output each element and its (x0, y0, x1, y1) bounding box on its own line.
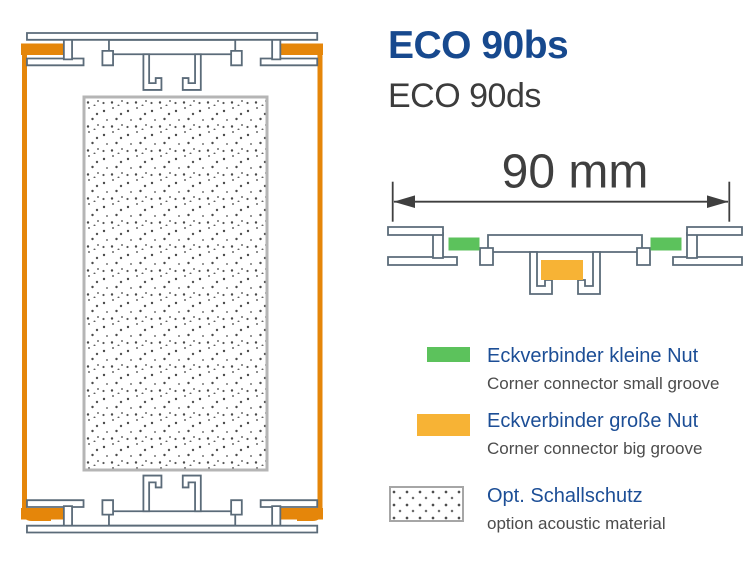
bottom-profile-cross-section (27, 476, 317, 533)
small-groove-swatch (427, 347, 470, 362)
acoustic-panel (84, 97, 267, 470)
big-groove-bar-bottom-right (276, 508, 323, 520)
dimension-label: 90 mm (502, 150, 649, 199)
dimension-arrowhead-right (707, 195, 729, 208)
legend-label-en: Corner connector big groove (487, 439, 750, 459)
frame-profile-right-line (297, 49, 320, 519)
big-groove-marker-center (541, 260, 583, 280)
vertical-cross-section-diagram (5, 10, 345, 555)
horizontal-cross-section-diagram: 90 mm (385, 150, 745, 308)
big-groove-bar-top-right (276, 44, 323, 56)
top-profile-cross-section (27, 33, 317, 90)
dimension-arrowhead-left (394, 195, 416, 208)
legend-label-en: option acoustic material (487, 514, 750, 534)
legend-item-acoustic: Opt. Schallschutz option acoustic materi… (385, 485, 750, 534)
legend-label-en: Corner connector small groove (487, 374, 750, 394)
frame-profile-left-line (25, 49, 52, 519)
big-groove-bar-bottom-left (21, 508, 68, 520)
legend-label-de: Opt. Schallschutz (487, 485, 750, 508)
small-groove-marker-left (449, 238, 480, 251)
legend-item-small-groove: Eckverbinder kleine Nut Corner connector… (385, 345, 750, 394)
big-groove-swatch (417, 414, 470, 436)
small-groove-marker-right (651, 238, 682, 251)
legend-item-big-groove: Eckverbinder große Nut Corner connector … (385, 410, 750, 459)
page-subtitle: ECO 90ds (388, 79, 541, 115)
legend-label-de: Eckverbinder kleine Nut (487, 345, 750, 368)
page-title: ECO 90bs (388, 26, 568, 67)
acoustic-swatch (389, 486, 464, 522)
big-groove-bar-top-left (21, 44, 68, 56)
page: ECO 90bs ECO 90ds 90 mm Eckverbinder kle… (0, 0, 756, 567)
legend-label-de: Eckverbinder große Nut (487, 410, 750, 433)
